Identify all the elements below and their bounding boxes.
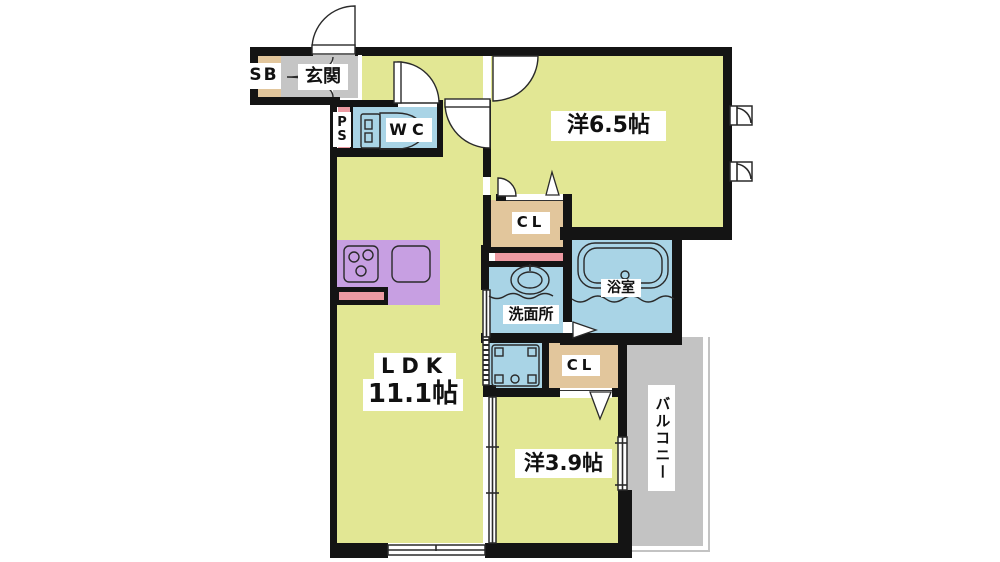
wc-door-leaf <box>394 62 401 103</box>
washroom-label: 洗面所 <box>503 305 559 324</box>
sliding-window-icon <box>615 437 627 490</box>
washing-machine-pan-icon <box>492 345 539 386</box>
stove-icon <box>344 246 378 282</box>
ldk-door-arc <box>445 103 490 148</box>
western-room-65-label: 洋6.5帖 <box>551 111 666 141</box>
western-room-39-label: 洋3.9帖 <box>515 449 612 478</box>
sliding-window-icon <box>388 545 485 555</box>
ldk-door-leaf <box>445 99 490 107</box>
kitchen-sink-icon <box>392 246 430 282</box>
washbasin-icon <box>489 264 553 299</box>
pipe-space-letter-s: S <box>337 130 346 144</box>
bathroom-door-triangle <box>573 322 596 338</box>
closet-2-door-triangle <box>590 392 611 419</box>
ldk-label: LDK <box>374 353 456 379</box>
floor-plan: SB 玄関 P S WC 洋6.5帖 CL 浴室 洗面所 CL LDK 11.1… <box>0 0 1000 562</box>
entrance-door-arc <box>312 6 355 49</box>
room39-sliding-door <box>486 397 499 543</box>
shoe-box-label: SB <box>247 63 281 89</box>
toilet-label: WC <box>386 118 432 142</box>
ldk-size-label: 11.1帖 <box>363 379 463 411</box>
fixtures-overlay <box>0 0 1000 562</box>
pipe-space-letter-p: P <box>337 116 347 130</box>
pipe-space-label: P S <box>333 112 351 147</box>
washroom-sliding-door <box>483 290 490 337</box>
entrance-label: 玄関 <box>298 64 348 90</box>
balcony-label: バルコニー <box>648 385 675 491</box>
entrance-door-leaf <box>312 45 355 54</box>
laundry-door-track <box>483 337 489 385</box>
awning-window-icon <box>730 162 752 181</box>
closet-2-label: CL <box>562 355 600 376</box>
closet-1-door-arc <box>498 178 516 196</box>
closet-1-door-triangle <box>546 172 559 195</box>
room65-door-arc <box>493 56 538 101</box>
awning-window-icon <box>730 106 752 125</box>
closet-1-label: CL <box>512 212 550 234</box>
bathroom-label: 浴室 <box>601 279 641 297</box>
wc-door-arc <box>398 62 439 103</box>
